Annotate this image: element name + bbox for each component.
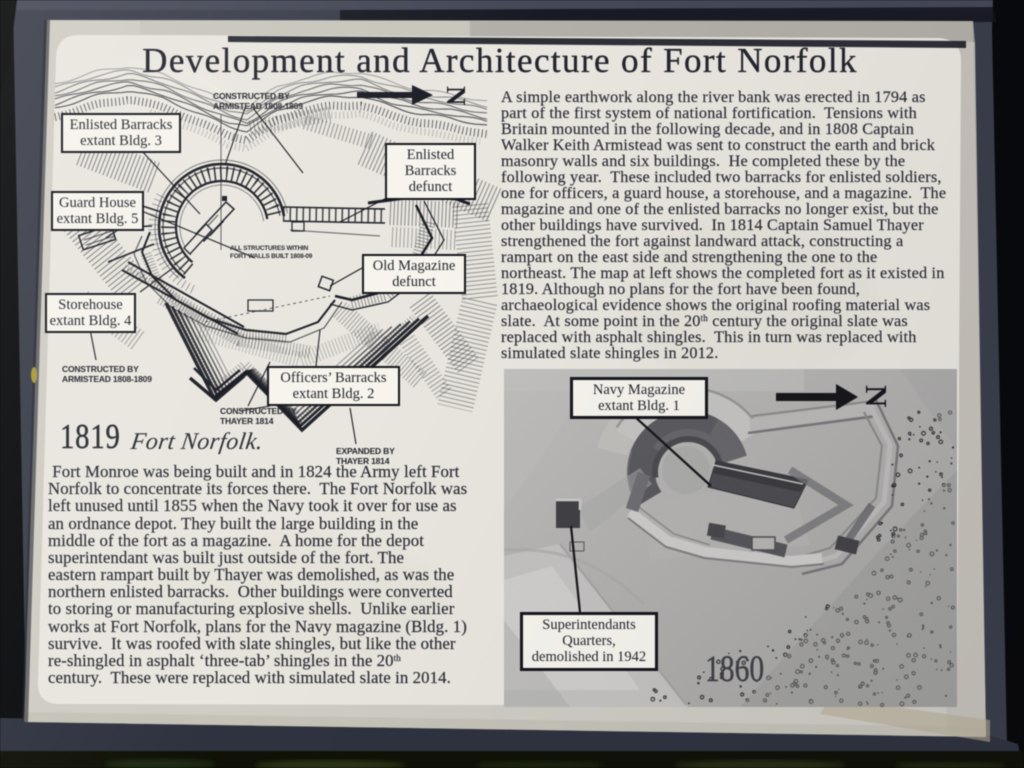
svg-text:N: N (441, 86, 471, 106)
svg-text:N: N (859, 385, 894, 407)
